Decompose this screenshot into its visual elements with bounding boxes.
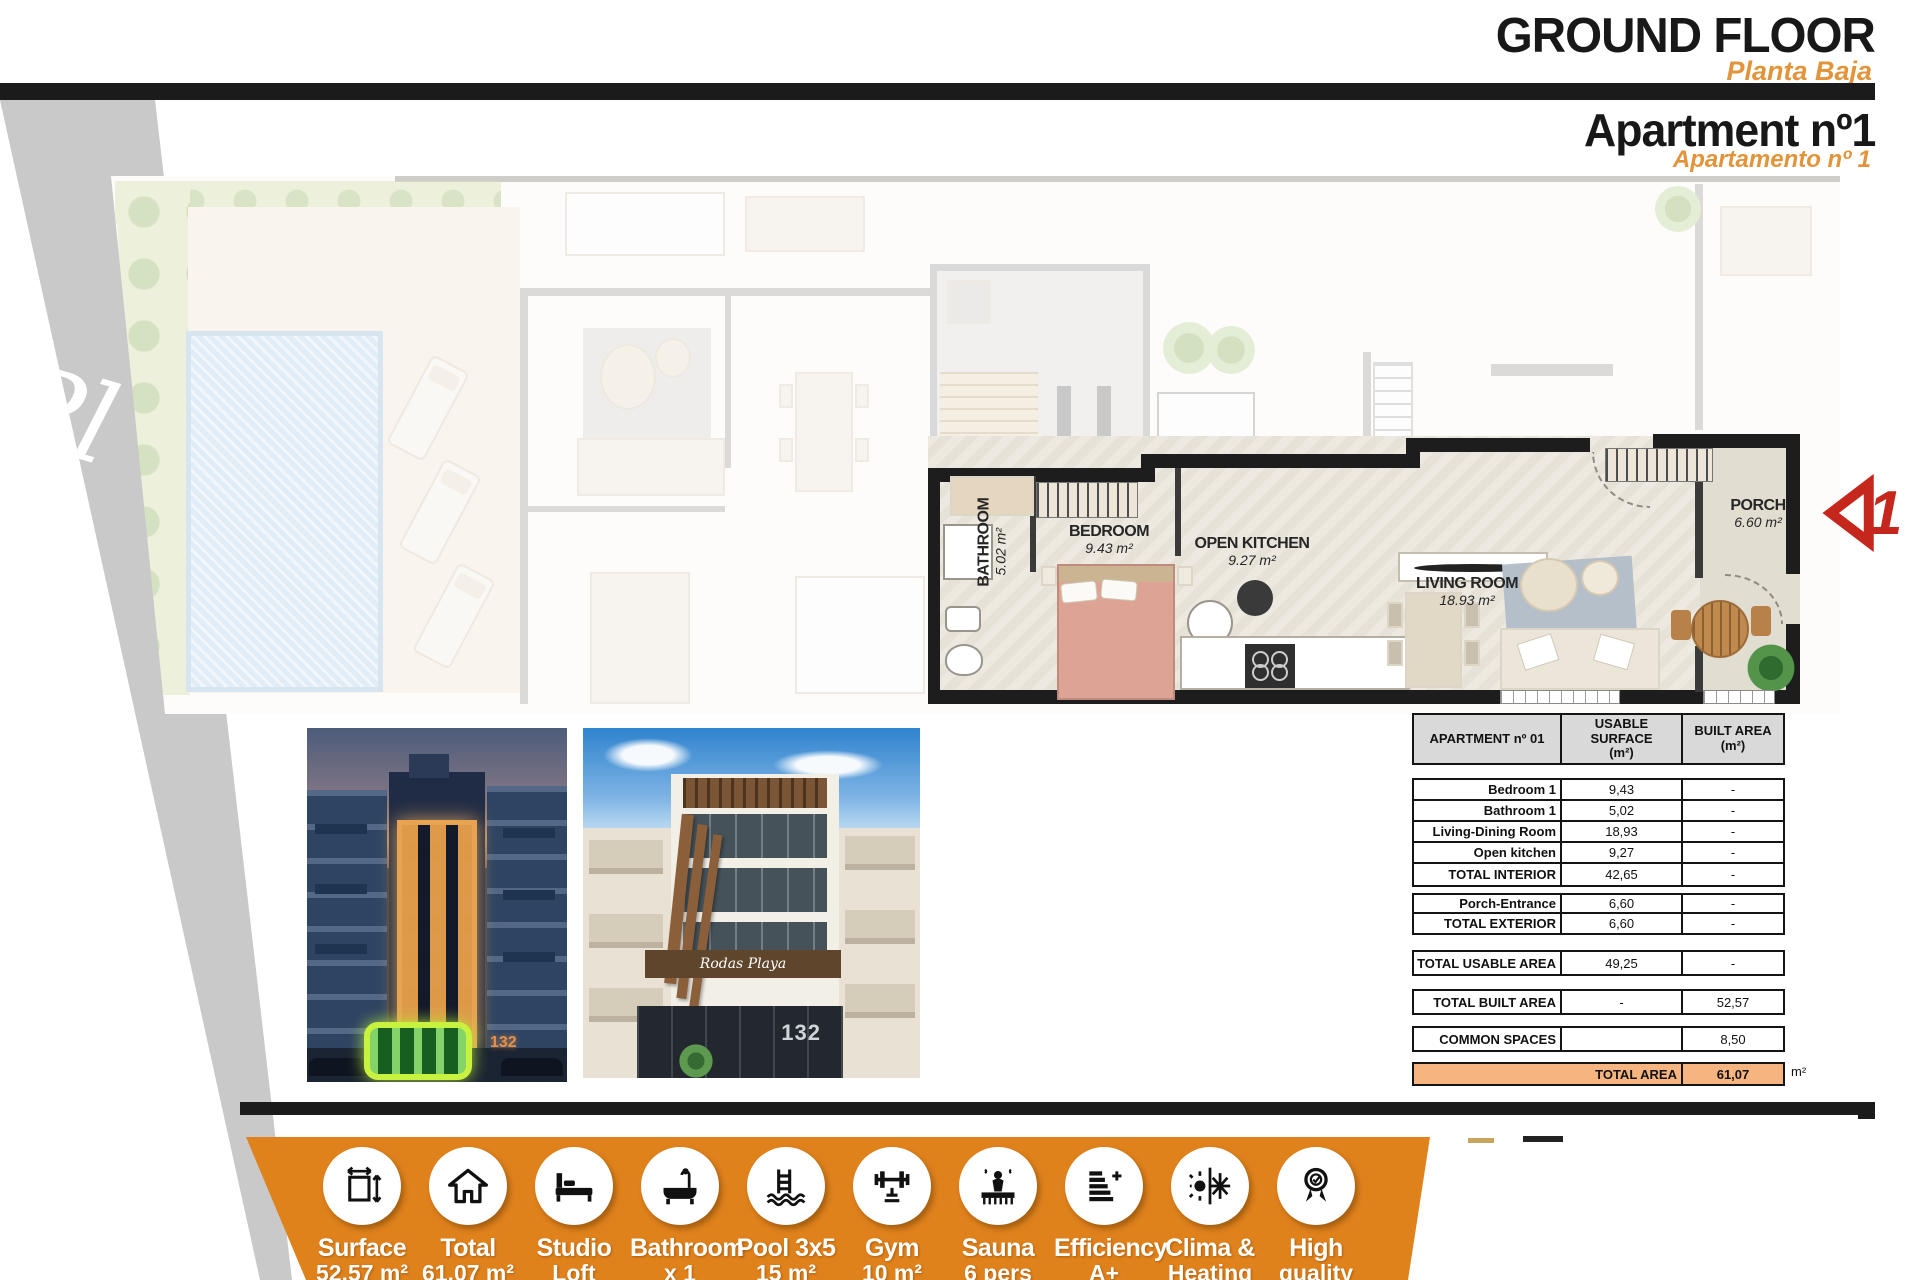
wall	[1153, 454, 1418, 468]
table-total-row: TOTAL AREA 61,07	[1412, 1062, 1785, 1086]
brochure-page: GROUND FLOOR Planta Baja Apartment nº1 A…	[0, 0, 1920, 1280]
table-row: TOTAL BUILT AREA-52,57	[1414, 991, 1783, 1013]
amenity-label: Surface	[312, 1235, 412, 1261]
storefront-plant	[679, 1044, 713, 1078]
surfaces-table: APARTMENT nº 01 USABLE SURFACE (m²) BUIL…	[1412, 713, 1815, 1093]
built-area-value: -	[1683, 780, 1783, 799]
usable-surface-value: 6,60	[1562, 914, 1683, 933]
table-header-cell: BUILT AREA (m²)	[1683, 715, 1783, 763]
table-block: COMMON SPACES8,50	[1412, 1026, 1785, 1052]
room-label-bedroom: BEDROOM 9.43 m²	[1057, 524, 1161, 555]
built-area-value: -	[1683, 914, 1783, 933]
chair	[1464, 640, 1480, 666]
gym-equipment	[1097, 386, 1111, 436]
faded-terrace-furniture	[1720, 206, 1812, 276]
usable-surface-value: 9,43	[1562, 780, 1683, 799]
chair	[1387, 640, 1403, 666]
sink	[945, 606, 981, 632]
pouf	[1581, 560, 1619, 596]
room-label-porch: PORCH 6.60 m²	[1715, 498, 1801, 529]
pillow	[1100, 578, 1138, 601]
table-block: TOTAL BUILT AREA-52,57	[1412, 989, 1785, 1015]
amenity-value: A+	[1054, 1261, 1154, 1280]
row-label: TOTAL INTERIOR	[1414, 864, 1562, 885]
amenity-value: x 1	[630, 1261, 730, 1280]
table-row: TOTAL INTERIOR42,65-	[1414, 864, 1783, 885]
usable-surface-value: 5,02	[1562, 801, 1683, 820]
usable-surface-value: 42,65	[1562, 864, 1683, 885]
row-label: TOTAL BUILT AREA	[1414, 991, 1562, 1013]
pool-icon	[747, 1147, 825, 1225]
sauna-icon	[959, 1147, 1037, 1225]
faded-dining-table	[795, 372, 853, 492]
wall	[1653, 434, 1800, 448]
faded-chair	[779, 384, 793, 408]
row-label: Bedroom 1	[1414, 780, 1562, 799]
quality-icon	[1277, 1147, 1355, 1225]
row-label: Bathroom 1	[1414, 801, 1562, 820]
amenity-value: Loft	[524, 1261, 624, 1280]
faded-chair	[855, 438, 869, 462]
faded-chair	[779, 438, 793, 462]
wall	[1175, 468, 1181, 556]
built-area-value: -	[1683, 895, 1783, 912]
unit-subtitle: Apartamento nº 1	[1673, 146, 1871, 174]
faded-table	[655, 338, 691, 378]
sofa	[1500, 628, 1660, 690]
plant	[1207, 326, 1255, 374]
watermark-script: Pl	[0, 337, 131, 490]
amenity-item: Clima &Heating	[1160, 1147, 1260, 1280]
built-area-value: -	[1683, 822, 1783, 841]
swimming-pool	[186, 331, 383, 692]
photo-building-day: Rodas Playa 132	[583, 728, 920, 1078]
building-sign-text: Rodas Playa	[700, 956, 786, 972]
porch-chair	[1671, 610, 1691, 640]
building-sign: Rodas Playa	[645, 950, 841, 978]
amenity-label: High	[1266, 1235, 1366, 1261]
amenity-item: Gym10 m²	[842, 1147, 942, 1280]
bottom-divider-bar	[240, 1102, 1862, 1115]
built-area-value: 52,57	[1683, 991, 1783, 1013]
photo-building-night: 132	[307, 728, 567, 1082]
usable-surface-value: 9,27	[1562, 843, 1683, 862]
amenity-item: Sauna6 pers	[948, 1147, 1048, 1280]
house-icon	[429, 1147, 507, 1225]
toilet	[945, 644, 983, 676]
stray-mark	[1468, 1138, 1494, 1143]
bed-icon	[535, 1147, 613, 1225]
faded-sofa	[577, 438, 725, 496]
sheet-edge	[395, 176, 1840, 182]
table-row: Bedroom 19,43-	[1414, 780, 1783, 801]
amenity-label: Studio	[524, 1235, 624, 1261]
wall	[1418, 438, 1590, 452]
table-row: Bathroom 15,02-	[1414, 801, 1783, 822]
amenity-label: Pool 3x5	[736, 1235, 836, 1261]
nightstand	[1041, 566, 1057, 586]
total-area-value: 61,07	[1683, 1064, 1783, 1084]
amenity-label: Efficiency	[1054, 1235, 1154, 1261]
header-divider-bar	[0, 83, 1875, 100]
kitchen-counter	[1180, 636, 1410, 690]
unit-marker-number: 1	[1868, 478, 1902, 549]
room-label-bathroom: BATHROOM 5.02 m²	[976, 517, 1007, 587]
table-row: Living-Dining Room18,93-	[1414, 822, 1783, 843]
porch-plant	[1747, 644, 1795, 692]
total-area-label: TOTAL AREA	[1414, 1064, 1683, 1084]
porch-window	[1703, 690, 1775, 704]
usable-surface-value: 49,25	[1562, 952, 1683, 974]
built-area-value: -	[1683, 843, 1783, 862]
porch-chair	[1751, 606, 1771, 636]
table-block: Bedroom 19,43-Bathroom 15,02-Living-Dini…	[1412, 778, 1785, 887]
wardrobe-hatch	[1036, 482, 1138, 518]
chair	[1387, 602, 1403, 628]
unit-suffix: m²	[1791, 1064, 1806, 1079]
amenity-item: Highquality	[1266, 1147, 1366, 1280]
amenity-item: Pool 3x515 m²	[736, 1147, 836, 1280]
table-header-row: APARTMENT nº 01 USABLE SURFACE (m²) BUIL…	[1412, 713, 1785, 765]
row-label: Porch-Entrance	[1414, 895, 1562, 912]
table-row: Open kitchen9,27-	[1414, 843, 1783, 864]
faded-table	[600, 344, 656, 410]
amenity-value: 52,57 m²	[312, 1261, 412, 1280]
table-header-cell: APARTMENT nº 01	[1414, 715, 1562, 763]
faded-kitchen	[795, 576, 925, 694]
built-area-value: -	[1683, 864, 1783, 885]
amenities-bar: Surface52,57 m²Total61,07 m²StudioLoftBa…	[246, 1137, 1430, 1280]
plant	[1655, 186, 1701, 232]
wall	[928, 468, 940, 704]
efficiency-icon	[1065, 1147, 1143, 1225]
row-label: TOTAL EXTERIOR	[1414, 914, 1562, 933]
usable-surface-value: -	[1562, 991, 1683, 1013]
bathtub-icon	[641, 1147, 719, 1225]
pillow	[1060, 580, 1098, 604]
faded-terrace	[565, 192, 725, 256]
amenity-item: Total61,07 m²	[418, 1147, 518, 1280]
amenity-label: Sauna	[948, 1235, 1048, 1261]
street-number: 132	[781, 1020, 821, 1046]
amenity-value: Heating	[1160, 1261, 1260, 1280]
amenity-item: Bathroomx 1	[630, 1147, 730, 1280]
room-label-living-room: LIVING ROOM 18.93 m²	[1407, 576, 1527, 607]
faded-wall	[725, 288, 731, 468]
amenity-value: 10 m²	[842, 1261, 942, 1280]
clima-icon	[1171, 1147, 1249, 1225]
usable-surface-value: 18,93	[1562, 822, 1683, 841]
amenity-item: EfficiencyA+	[1054, 1147, 1154, 1280]
room-label-open-kitchen: OPEN KITCHEN 9.27 m²	[1187, 536, 1317, 567]
surface-icon	[323, 1147, 401, 1225]
nightstand	[1177, 566, 1193, 586]
kitchen-stool	[1237, 580, 1273, 616]
gym-icon	[853, 1147, 931, 1225]
stray-mark	[1523, 1136, 1563, 1142]
table-block: TOTAL USABLE AREA49,25-	[1412, 950, 1785, 976]
cooktop	[1245, 644, 1295, 688]
coffee-table	[1520, 558, 1578, 612]
row-label: Open kitchen	[1414, 843, 1562, 862]
amenity-value: 15 m²	[736, 1261, 836, 1280]
amenity-label: Clima &	[1160, 1235, 1260, 1261]
gym-equipment	[947, 280, 991, 324]
amenity-value: quality	[1266, 1261, 1366, 1280]
built-area-value: 8,50	[1683, 1028, 1783, 1050]
table-row: TOTAL EXTERIOR6,60-	[1414, 914, 1783, 933]
amenity-item: StudioLoft	[524, 1147, 624, 1280]
amenity-label: Total	[418, 1235, 518, 1261]
faded-terrace	[745, 196, 865, 252]
amenity-row: Surface52,57 m²Total61,07 m²StudioLoftBa…	[312, 1147, 1366, 1280]
table-row: TOTAL USABLE AREA49,25-	[1414, 952, 1783, 974]
faded-wall	[1491, 364, 1613, 376]
amenity-value: 61,07 m²	[418, 1261, 518, 1280]
row-label: TOTAL USABLE AREA	[1414, 952, 1562, 974]
porch-table	[1691, 600, 1749, 658]
amenity-label: Gym	[842, 1235, 942, 1261]
gym-equipment	[1057, 386, 1071, 436]
usable-surface-value	[1562, 1028, 1683, 1050]
wall	[1695, 646, 1703, 692]
faded-bed	[590, 572, 690, 704]
street-number: 132	[490, 1034, 517, 1052]
table-header-cell: USABLE SURFACE (m²)	[1562, 715, 1683, 763]
floorplan: BATHROOM 5.02 m² BEDROOM 9.43 m² OPEN KI…	[95, 176, 1840, 714]
built-area-value: -	[1683, 952, 1783, 974]
built-area-value: -	[1683, 801, 1783, 820]
faded-wall	[520, 288, 528, 704]
usable-surface-value: 6,60	[1562, 895, 1683, 912]
storefront: 132	[637, 1006, 843, 1078]
amenity-value: 6 pers	[948, 1261, 1048, 1280]
sliding-door	[1500, 690, 1620, 704]
table-row: Porch-Entrance6,60-	[1414, 895, 1783, 914]
amenity-item: Surface52,57 m²	[312, 1147, 412, 1280]
unit-highlight-box	[364, 1022, 472, 1080]
faded-chair	[855, 384, 869, 408]
table-block: Porch-Entrance6,60-TOTAL EXTERIOR6,60-	[1412, 893, 1785, 935]
amenity-label: Bathroom	[630, 1235, 730, 1261]
row-label: COMMON SPACES	[1414, 1028, 1562, 1050]
row-label: Living-Dining Room	[1414, 822, 1562, 841]
unit-marker: 1	[1818, 474, 1902, 552]
table-row: COMMON SPACES8,50	[1414, 1028, 1783, 1050]
faded-wall	[525, 506, 725, 512]
bottom-divider-bar	[1858, 1102, 1875, 1119]
